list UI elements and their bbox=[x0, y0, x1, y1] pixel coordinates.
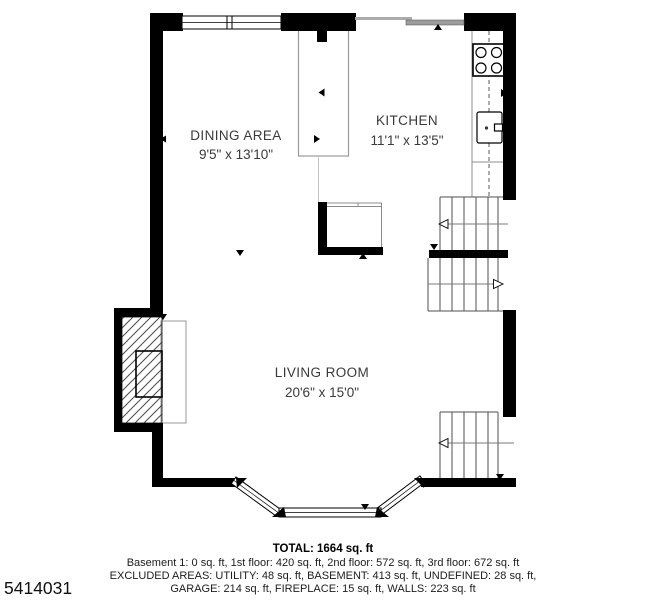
sliding-door-panel bbox=[355, 17, 412, 20]
sliding-door-panel bbox=[406, 20, 464, 25]
kitchen-label: KITCHEN bbox=[376, 113, 438, 128]
plan-id: 5414031 bbox=[4, 578, 72, 598]
window-top bbox=[182, 16, 281, 29]
right-wall-upper bbox=[503, 13, 516, 200]
bay-window-right-pane bbox=[375, 476, 425, 516]
fireplace-wall-left bbox=[114, 308, 122, 432]
floor-plan-drawing: DINING AREA 9'5" x 13'10" KITCHEN 11'1" … bbox=[0, 0, 646, 600]
fireplace bbox=[114, 308, 186, 432]
left-wall-upper bbox=[150, 13, 163, 313]
kitchen-dimensions: 11'1" x 13'5" bbox=[370, 133, 443, 148]
dining-area-label: DINING AREA bbox=[190, 128, 281, 143]
excluded-areas-text-line2: GARAGE: 214 sq. ft, FIREPLACE: 15 sq. ft… bbox=[170, 583, 475, 595]
kitchen-counter bbox=[440, 31, 504, 197]
dining-area-dimensions: 9'5" x 13'10" bbox=[199, 147, 273, 162]
total-area-text: TOTAL: 1664 sq. ft bbox=[273, 543, 374, 555]
bottom-wall-right bbox=[421, 478, 516, 487]
bay-window bbox=[231, 476, 425, 517]
staircase-upper bbox=[439, 197, 508, 250]
living-room-label: LIVING ROOM bbox=[275, 365, 369, 380]
sink-icon bbox=[477, 112, 503, 143]
floor-areas-text: Basement 1: 0 sq. ft, 1st floor: 420 sq.… bbox=[127, 557, 520, 569]
excluded-areas-text-line1: EXCLUDED AREAS: UTILITY: 48 sq. ft, BASE… bbox=[110, 570, 537, 582]
closet bbox=[318, 202, 383, 255]
camera-marker-down-icon bbox=[430, 244, 438, 250]
living-room-dimensions: 20'6" x 15'0" bbox=[285, 385, 359, 400]
right-wall-middle bbox=[503, 310, 516, 417]
fireplace-hearth bbox=[161, 321, 186, 423]
staircase-middle bbox=[428, 258, 505, 311]
stairwell-wall bbox=[429, 250, 508, 258]
room-divider bbox=[299, 28, 349, 202]
camera-marker-down-icon bbox=[236, 250, 244, 256]
top-wall-segment bbox=[281, 13, 356, 31]
stove-icon bbox=[473, 44, 504, 76]
floor-plan-page: DINING AREA 9'5" x 13'10" KITCHEN 11'1" … bbox=[0, 0, 646, 600]
closet-bottom-wall bbox=[318, 247, 383, 255]
bottom-wall-left bbox=[152, 478, 238, 487]
sliding-door-top bbox=[355, 17, 464, 25]
fireplace-chimney-hatched bbox=[122, 317, 162, 423]
staircase-lower bbox=[439, 412, 514, 478]
divider-wall-stub bbox=[317, 31, 327, 42]
